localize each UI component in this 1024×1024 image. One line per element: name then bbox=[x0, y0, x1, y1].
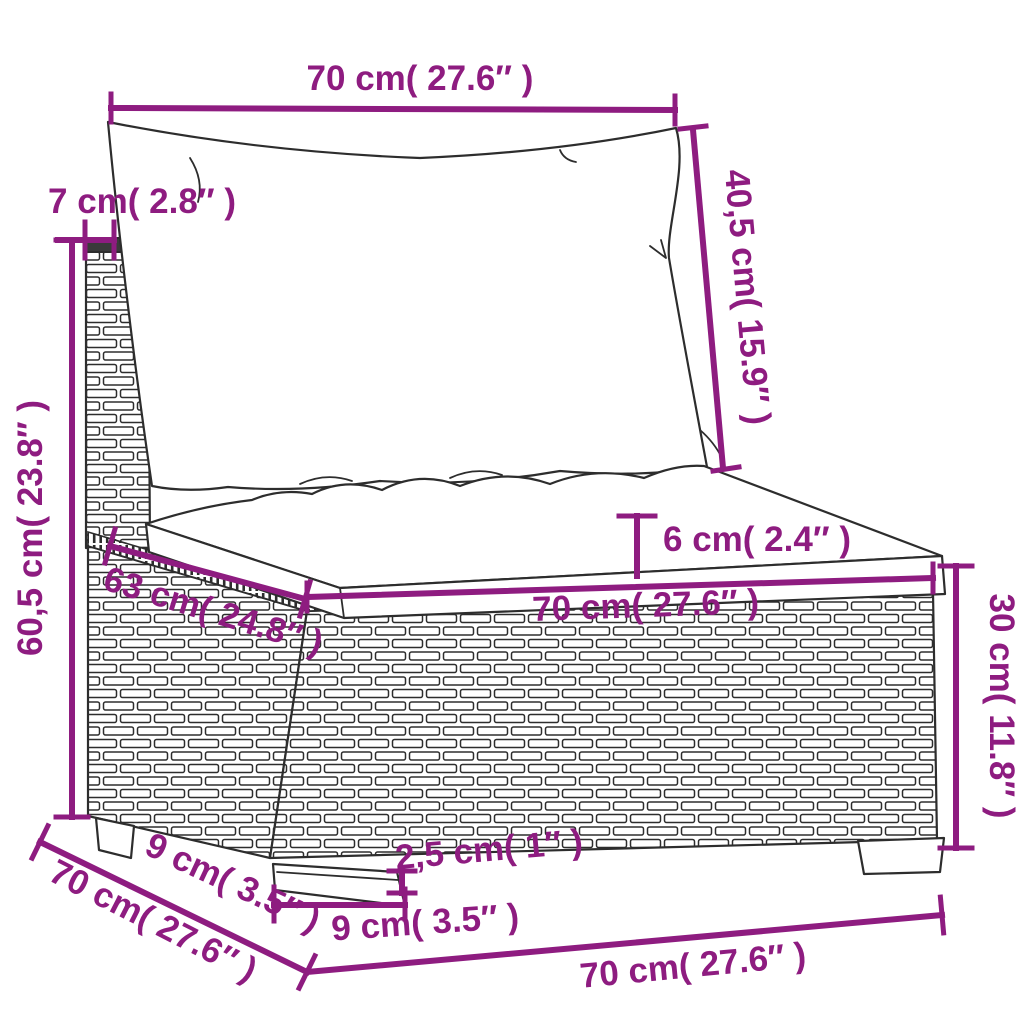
dim-base-height-label: 30 cm( 11.8″ ) bbox=[982, 594, 1021, 819]
dim-back-cushion-width: 70 cm( 27.6″ ) bbox=[111, 59, 675, 124]
diagram-canvas: 70 cm( 27.6″ ) 7 cm( 2.8″ ) 40,5 cm( 15.… bbox=[0, 0, 1024, 1024]
dim-seat-cushion-thickness-label: 6 cm( 2.4″ ) bbox=[663, 520, 851, 559]
dim-back-cushion-height-label: 40,5 cm( 15.9″ ) bbox=[717, 168, 778, 427]
back-cushion bbox=[108, 122, 722, 490]
dim-total-height-label: 60,5 cm( 23.8″ ) bbox=[11, 400, 50, 656]
furniture-line-art bbox=[86, 122, 945, 906]
base-front-face bbox=[270, 592, 937, 858]
dimension-diagram: 70 cm( 27.6″ ) 7 cm( 2.8″ ) 40,5 cm( 15.… bbox=[0, 0, 1024, 1024]
dim-seat-width-label: 70 cm( 27.6″ ) bbox=[532, 582, 760, 629]
dim-total-height: 60,5 cm( 23.8″ ) bbox=[11, 240, 88, 817]
dim-base-height: 30 cm( 11.8″ ) bbox=[940, 566, 1021, 848]
dim-back-panel-thickness-label: 7 cm( 2.8″ ) bbox=[48, 182, 236, 221]
front-right-leg bbox=[858, 838, 944, 874]
back-left-leg bbox=[96, 818, 134, 858]
dim-back-cushion-width-label: 70 cm( 27.6″ ) bbox=[307, 59, 534, 98]
